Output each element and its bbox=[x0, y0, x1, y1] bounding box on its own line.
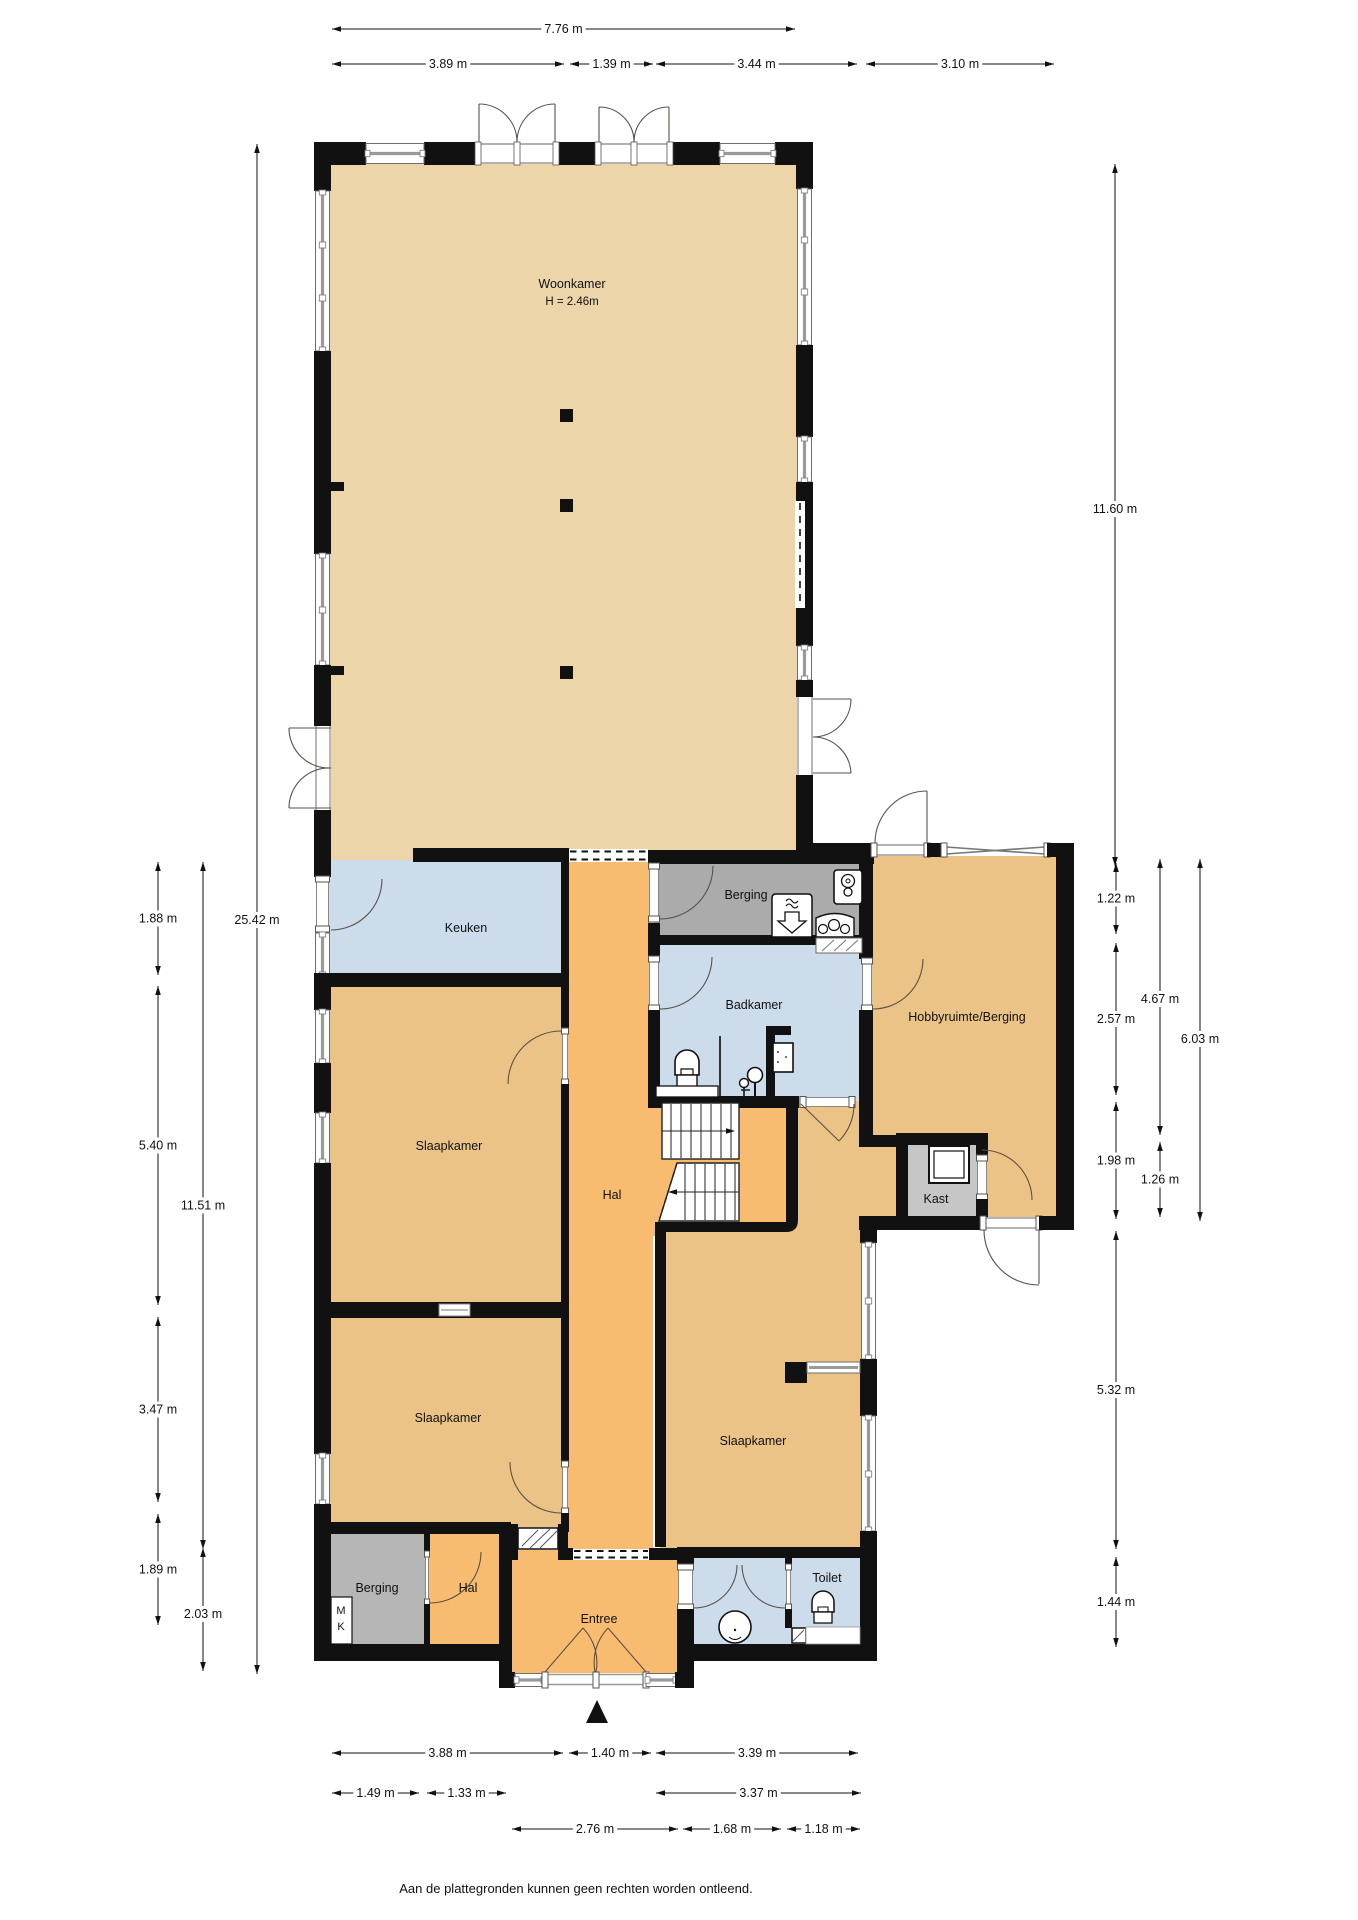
svg-text:4.67 m: 4.67 m bbox=[1141, 992, 1179, 1006]
svg-text:H = 2.46m: H = 2.46m bbox=[545, 296, 598, 308]
svg-text:Slaapkamer: Slaapkamer bbox=[416, 1139, 483, 1153]
svg-text:2.76 m: 2.76 m bbox=[576, 1822, 614, 1836]
svg-text:Hal: Hal bbox=[603, 1188, 622, 1202]
svg-text:1.22 m: 1.22 m bbox=[1097, 892, 1135, 906]
svg-text:Berging: Berging bbox=[355, 1581, 398, 1595]
svg-text:Entree: Entree bbox=[581, 1612, 618, 1626]
svg-text:Hobbyruimte/Berging: Hobbyruimte/Berging bbox=[908, 1010, 1025, 1024]
svg-text:3.89 m: 3.89 m bbox=[429, 57, 467, 71]
svg-text:3.44 m: 3.44 m bbox=[737, 57, 775, 71]
svg-text:3.39 m: 3.39 m bbox=[738, 1746, 776, 1760]
svg-text:11.51 m: 11.51 m bbox=[181, 1199, 225, 1213]
svg-text:Woonkamer: Woonkamer bbox=[538, 277, 605, 291]
svg-text:11.60 m: 11.60 m bbox=[1093, 502, 1137, 516]
svg-text:5.40 m: 5.40 m bbox=[139, 1139, 177, 1153]
svg-text:1.98 m: 1.98 m bbox=[1097, 1154, 1135, 1168]
svg-text:K: K bbox=[337, 1621, 345, 1633]
svg-text:Badkamer: Badkamer bbox=[726, 998, 783, 1012]
svg-text:M: M bbox=[336, 1605, 345, 1617]
svg-text:1.40 m: 1.40 m bbox=[591, 1746, 629, 1760]
svg-text:Aan de plattegronden kunnen ge: Aan de plattegronden kunnen geen rechten… bbox=[399, 1881, 752, 1896]
svg-text:1.49 m: 1.49 m bbox=[356, 1786, 394, 1800]
svg-text:1.26 m: 1.26 m bbox=[1141, 1173, 1179, 1187]
svg-text:6.03 m: 6.03 m bbox=[1181, 1032, 1219, 1046]
svg-text:25.42 m: 25.42 m bbox=[234, 913, 279, 927]
svg-text:Hal: Hal bbox=[459, 1581, 478, 1595]
svg-text:Berging: Berging bbox=[724, 888, 767, 902]
svg-text:1.89 m: 1.89 m bbox=[139, 1563, 177, 1577]
svg-text:1.18 m: 1.18 m bbox=[804, 1822, 842, 1836]
svg-text:1.44 m: 1.44 m bbox=[1097, 1595, 1135, 1609]
svg-text:Keuken: Keuken bbox=[445, 921, 487, 935]
svg-text:2.03 m: 2.03 m bbox=[184, 1607, 222, 1621]
svg-text:3.47 m: 3.47 m bbox=[139, 1403, 177, 1417]
svg-text:1.88 m: 1.88 m bbox=[139, 912, 177, 926]
svg-text:Slaapkamer: Slaapkamer bbox=[720, 1434, 787, 1448]
svg-text:Kast: Kast bbox=[923, 1192, 949, 1206]
svg-text:3.37 m: 3.37 m bbox=[739, 1786, 777, 1800]
svg-text:3.10 m: 3.10 m bbox=[941, 57, 979, 71]
svg-text:1.39 m: 1.39 m bbox=[592, 57, 630, 71]
svg-text:3.88 m: 3.88 m bbox=[428, 1746, 466, 1760]
svg-text:2.57 m: 2.57 m bbox=[1097, 1012, 1135, 1026]
svg-text:Slaapkamer: Slaapkamer bbox=[415, 1411, 482, 1425]
svg-text:1.33 m: 1.33 m bbox=[447, 1786, 485, 1800]
svg-text:5.32 m: 5.32 m bbox=[1097, 1383, 1135, 1397]
svg-text:7.76 m: 7.76 m bbox=[544, 22, 582, 36]
svg-text:1.68 m: 1.68 m bbox=[713, 1822, 751, 1836]
svg-text:Toilet: Toilet bbox=[812, 1571, 842, 1585]
